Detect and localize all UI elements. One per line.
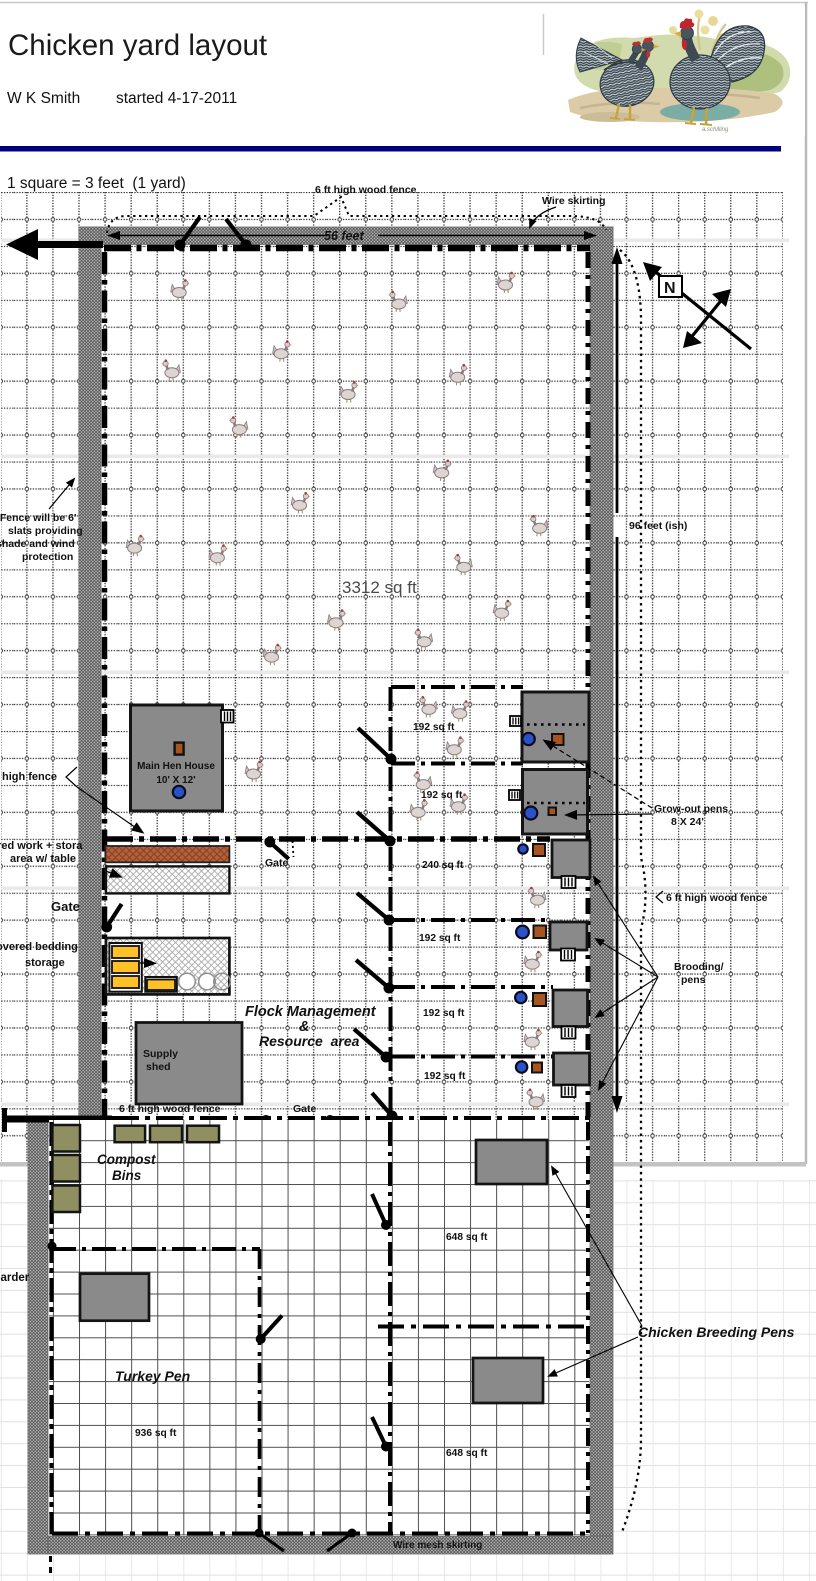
svg-text:Brooding/: Brooding/ <box>674 961 724 973</box>
svg-text:Resource area: Resource area <box>259 1033 360 1049</box>
svg-text:started 4-17-2011: started 4-17-2011 <box>116 90 237 107</box>
svg-text:protection: protection <box>22 551 73 563</box>
svg-text:Grow-out pens: Grow-out pens <box>654 803 728 815</box>
svg-text:192 sq ft: 192 sq ft <box>423 1008 465 1019</box>
svg-text:Bins: Bins <box>112 1168 142 1183</box>
svg-text:Chicken Breeding Pens: Chicken Breeding Pens <box>638 1324 795 1340</box>
svg-text:Turkey Pen: Turkey Pen <box>115 1368 190 1384</box>
svg-text:Gate: Gate <box>265 857 289 869</box>
svg-text:936 sq ft: 936 sq ft <box>135 1428 177 1439</box>
svg-text:3312 sq ft: 3312 sq ft <box>342 578 417 597</box>
svg-text:Gate: Gate <box>293 1103 317 1115</box>
svg-text:10' X 12': 10' X 12' <box>156 775 195 786</box>
svg-text:N: N <box>664 280 676 297</box>
svg-text:Supply: Supply <box>143 1048 178 1060</box>
svg-text:8 X 24': 8 X 24' <box>671 816 704 828</box>
svg-text:shade and wind: shade and wind <box>0 538 75 550</box>
svg-text:W Fence will be 6': W Fence will be 6' <box>0 512 76 524</box>
svg-text:storage: storage <box>25 957 65 969</box>
svg-text:slats providing: slats providing <box>8 525 83 537</box>
svg-text:Garden boarder: Garden boarder <box>0 1272 30 1284</box>
svg-text:1 square = 3 feet (1 yard): 1 square = 3 feet (1 yard) <box>7 175 186 192</box>
svg-text:6 ft high wood fence: 6 ft high wood fence <box>119 1103 221 1115</box>
svg-text:Main Hen House: Main Hen House <box>137 761 215 772</box>
svg-text:a.schilling: a.schilling <box>702 127 729 133</box>
svg-text:shed: shed <box>146 1061 171 1073</box>
svg-text:Flock Management: Flock Management <box>245 1004 377 1020</box>
svg-text:Chicken yard layout: Chicken yard layout <box>8 29 267 62</box>
svg-text:Wire mesh skirting: Wire mesh skirting <box>393 1540 482 1551</box>
svg-text:Wire skirting: Wire skirting <box>542 195 606 207</box>
svg-text:high fence: high fence <box>2 771 57 783</box>
svg-text:56 feet: 56 feet <box>324 229 364 243</box>
svg-text:192 sq ft: 192 sq ft <box>424 1071 466 1082</box>
svg-text:192 sq ft: 192 sq ft <box>413 722 455 733</box>
svg-text:648 sq ft: 648 sq ft <box>446 1448 488 1459</box>
svg-text:overed bedding: overed bedding <box>0 941 78 953</box>
svg-text:192 sq ft: 192 sq ft <box>421 790 463 801</box>
svg-text:96 feet (ish): 96 feet (ish) <box>629 520 687 532</box>
svg-text:648 sq ft: 648 sq ft <box>446 1232 488 1243</box>
svg-text:240 sq ft: 240 sq ft <box>422 860 464 871</box>
svg-text:192 sq ft: 192 sq ft <box>419 933 461 944</box>
svg-text:covered work + stora: covered work + stora <box>0 840 83 852</box>
svg-text:area w/ table: area w/ table <box>10 853 76 865</box>
svg-text:Gate: Gate <box>51 899 80 914</box>
svg-text:6 ft high wood fence: 6 ft high wood fence <box>666 892 768 904</box>
svg-text:W K Smith: W K Smith <box>7 90 80 107</box>
svg-text:6 ft high wood fence: 6 ft high wood fence <box>315 184 417 196</box>
svg-text:Compost: Compost <box>97 1152 156 1167</box>
svg-text:pens: pens <box>681 974 706 986</box>
